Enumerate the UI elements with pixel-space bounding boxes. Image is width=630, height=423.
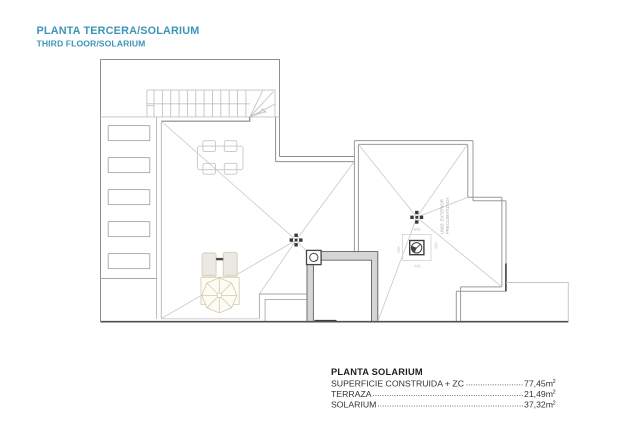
svg-text:A/A: A/A <box>396 246 401 253</box>
svg-text:UNID. EXTERIOR: UNID. EXTERIOR <box>440 199 445 234</box>
svg-text:THIRD FLOOR/SOLARIUM: THIRD FLOOR/SOLARIUM <box>37 38 146 48</box>
svg-text:77,45m: 77,45m <box>524 378 553 388</box>
svg-text:37,32m: 37,32m <box>524 400 553 410</box>
svg-text:2: 2 <box>553 390 556 396</box>
svg-text:SOLARIUM: SOLARIUM <box>331 400 376 410</box>
svg-text:2: 2 <box>553 400 556 406</box>
svg-text:2: 2 <box>553 379 556 385</box>
svg-text:A/A: A/A <box>434 242 439 249</box>
svg-text:SUPERFICIE CONSTRUIDA + ZC: SUPERFICIE CONSTRUIDA + ZC <box>331 378 464 388</box>
svg-text:PLANTA SOLARIUM: PLANTA SOLARIUM <box>331 367 423 377</box>
svg-text:V/V: V/V <box>414 227 421 232</box>
svg-text:21,49m: 21,49m <box>524 389 553 399</box>
svg-text:A/A: A/A <box>414 264 421 269</box>
svg-text:TERRAZA: TERRAZA <box>331 389 372 399</box>
svg-text:PRECLIMATIZADA: PRECLIMATIZADA <box>445 197 450 234</box>
svg-text:PLANTA TERCERA/SOLARIUM: PLANTA TERCERA/SOLARIUM <box>37 25 200 37</box>
